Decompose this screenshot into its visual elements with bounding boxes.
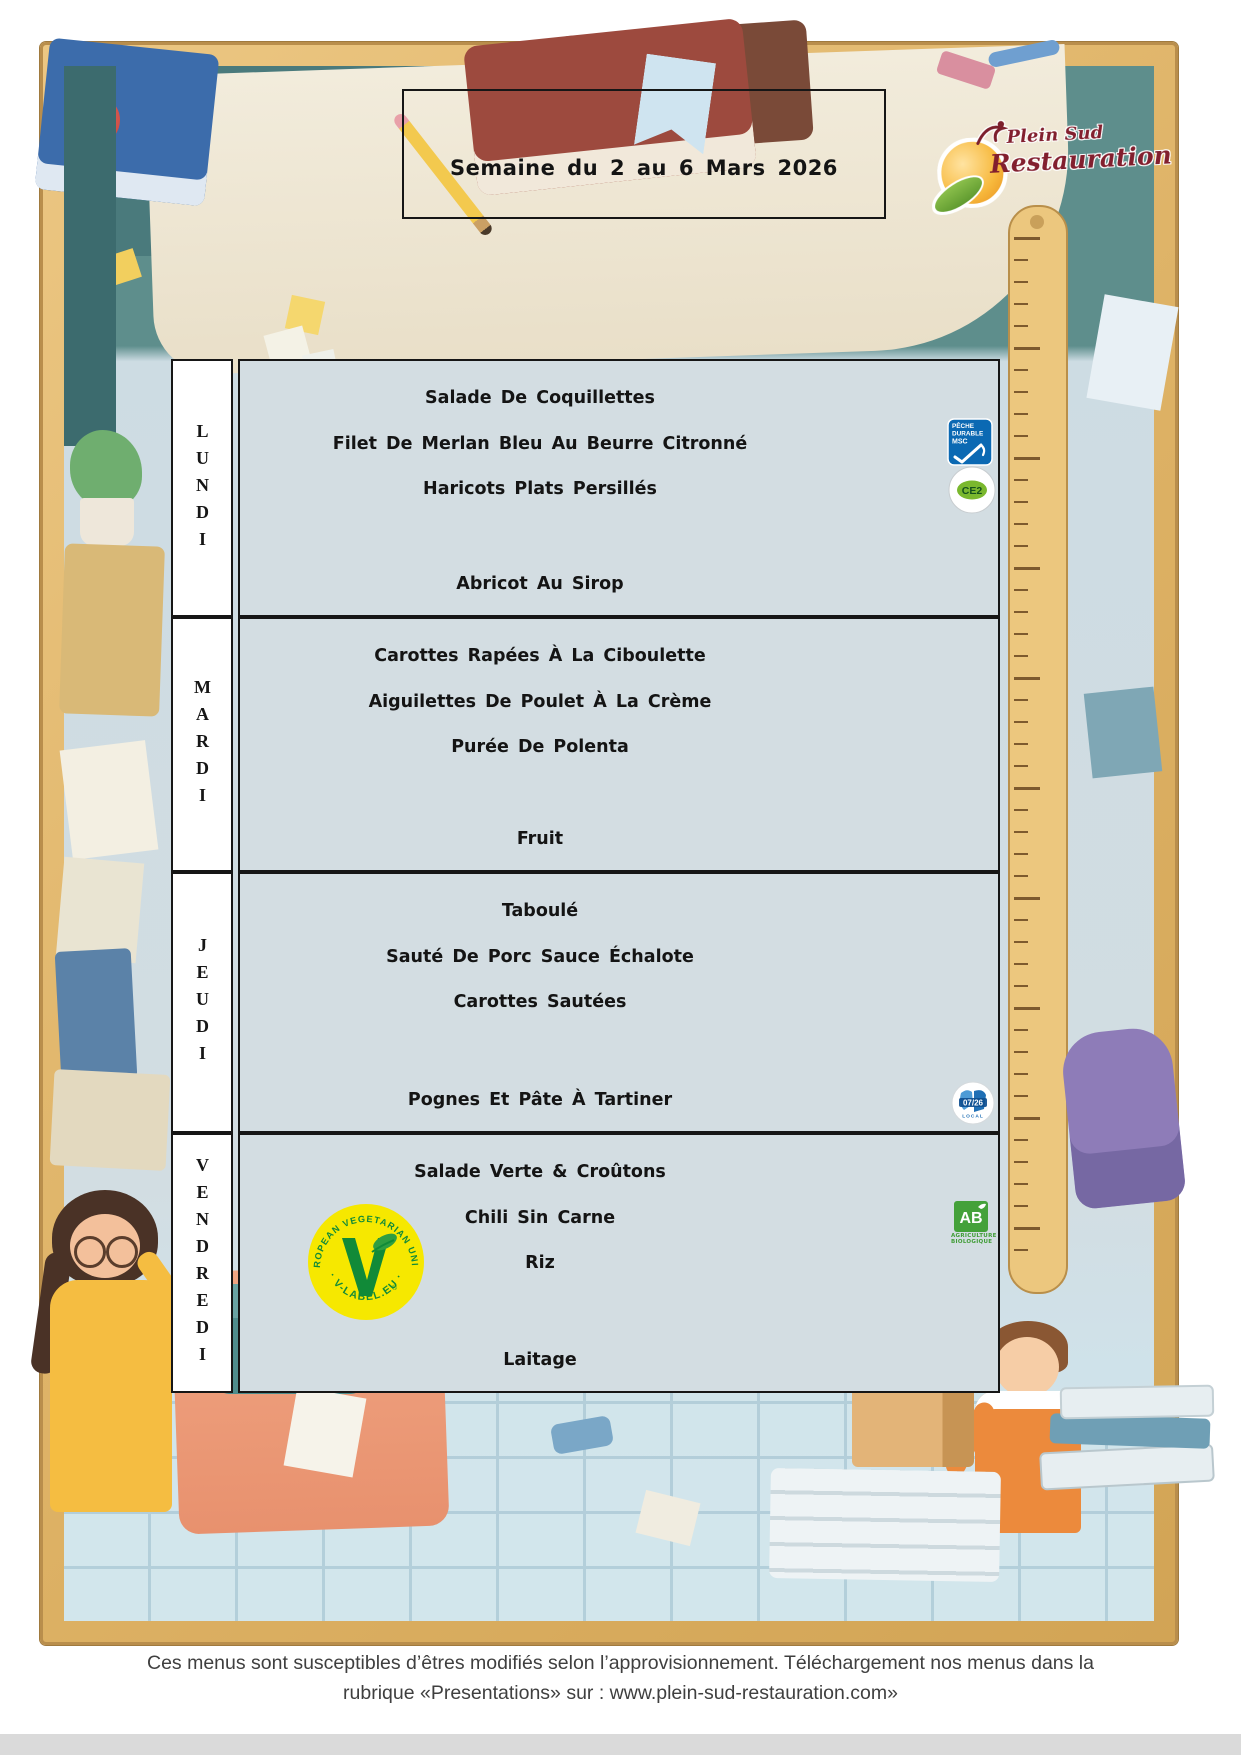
menu-item-dessert: Fruit: [254, 824, 826, 854]
menu-item: Filet De Merlan Bleu Au Beurre Citronné: [254, 429, 826, 459]
menu-item-dessert: Laitage: [254, 1345, 826, 1375]
menu-item: Salade Verte & Croûtons: [254, 1157, 826, 1187]
ruler-illustration: [1008, 205, 1068, 1294]
bottom-bar: [0, 1734, 1241, 1755]
menu-row-lundi: LUNDI Salade De Coquillettes Filet De Me…: [171, 359, 1000, 617]
paper-on-desk-illustration: [284, 1387, 367, 1478]
backpack-illustration: [1059, 1025, 1187, 1211]
girl-glasses: [74, 1236, 106, 1268]
ce2-badge-label: CE2: [962, 485, 983, 497]
v-label-registered-mark: ®: [392, 1284, 398, 1292]
week-title: Semaine du 2 au 6 Mars 2026: [450, 156, 838, 180]
menu-item: Sauté De Porc Sauce Échalote: [254, 942, 826, 972]
day-label: JEUDI: [192, 935, 213, 1070]
ab-organic-badge: AB AGRICULTURE BIOLOGIQUE: [951, 1200, 991, 1245]
menu-items-cell: Carottes Rapées À La Ciboulette Aiguilet…: [238, 617, 1000, 872]
local-badge-label: 07/26: [963, 1098, 984, 1107]
menu-item: Salade De Coquillettes: [254, 383, 826, 413]
shelf-illustration: [64, 66, 116, 446]
local-07-26-badge-icon: 07/26 LOCAL: [951, 1081, 995, 1125]
menu-item-dessert: Abricot Au Sirop: [254, 569, 826, 599]
menu-item: Carottes Rapées À La Ciboulette: [254, 641, 826, 671]
book-stack-illustration: [769, 1468, 1001, 1582]
book-stack-illustration: [1039, 1443, 1215, 1490]
menu-page: Plein Sud Restauration Plein Sud Restaur…: [0, 0, 1241, 1755]
menu-row-mardi: MARDI Carottes Rapées À La Ciboulette Ai…: [171, 617, 1000, 872]
day-label-cell: LUNDI: [171, 359, 233, 617]
menu-item: Aiguilettes De Poulet À La Crème: [254, 687, 826, 717]
menu-item: Purée De Polenta: [254, 732, 826, 762]
msc-text-line1: PÊCHE: [952, 421, 975, 430]
menu-item: Taboulé: [254, 896, 826, 926]
menu-item-dessert: Pognes Et Pâte À Tartiner: [254, 1085, 826, 1115]
v-label-vegetarian-icon: EUROPEAN VEGETARIAN UNION · V-LABEL.EU ·…: [306, 1202, 426, 1322]
week-title-box: Semaine du 2 au 6 Mars 2026: [402, 89, 886, 219]
menu-items-cell: Taboulé Sauté De Porc Sauce Échalote Car…: [238, 872, 1000, 1133]
paper-scrap-illustration: [1084, 687, 1163, 779]
footer-note-line1: Ces menus sont susceptibles d’êtres modi…: [0, 1652, 1241, 1675]
girl-body: [50, 1280, 172, 1512]
menu-table: LUNDI Salade De Coquillettes Filet De Me…: [171, 359, 1000, 1393]
menu-item: Haricots Plats Persillés: [254, 474, 826, 504]
girl-glasses: [106, 1236, 138, 1268]
ab-badge-sub2: BIOLOGIQUE: [951, 1239, 991, 1245]
msc-text-line2: DURABLE: [952, 431, 984, 438]
ab-badge-icon: AB: [951, 1200, 991, 1233]
stem-swirl-icon: [974, 117, 1009, 147]
day-label: LUNDI: [192, 421, 213, 556]
local-badge-sub: LOCAL: [962, 1114, 984, 1120]
day-label: VENDREDI: [192, 1155, 213, 1371]
menu-item: Carottes Sautées: [254, 987, 826, 1017]
day-label: MARDI: [192, 677, 213, 812]
day-label-cell: MARDI: [171, 617, 233, 872]
plant-pot-illustration: [80, 498, 134, 546]
day-label-cell: VENDREDI: [171, 1133, 233, 1393]
paper-stack-illustration: [60, 740, 159, 860]
ruler-ticks-long: [1014, 237, 1040, 1262]
book-illustration: [55, 948, 138, 1082]
msc-label-icon: PÊCHE DURABLE MSC: [947, 418, 993, 466]
menu-items-cell: Salade De Coquillettes Filet De Merlan B…: [238, 359, 1000, 617]
book-stack-illustration: [1060, 1385, 1215, 1420]
ruler-hole: [1030, 215, 1044, 229]
boy-face: [995, 1337, 1059, 1397]
ab-badge-label: AB: [959, 1210, 982, 1227]
day-label-cell: JEUDI: [171, 872, 233, 1133]
footer-note-line2: rubrique «Presentations» sur : www.plein…: [0, 1682, 1241, 1705]
notebook-illustration: [35, 38, 220, 207]
brand-logo: Plein Sud Restauration: [936, 111, 1192, 214]
menu-row-jeudi: JEUDI Taboulé Sauté De Porc Sauce Échalo…: [171, 872, 1000, 1133]
book-pile-illustration: [50, 1069, 171, 1171]
menu-row-vendredi: VENDREDI Salade Verte & Croûtons Chili S…: [171, 1133, 1000, 1393]
paper-stack-illustration: [56, 857, 144, 964]
msc-text-line3: MSC: [952, 439, 968, 446]
ce2-badge-icon: CE2: [948, 466, 996, 514]
folder-illustration: [59, 543, 165, 716]
